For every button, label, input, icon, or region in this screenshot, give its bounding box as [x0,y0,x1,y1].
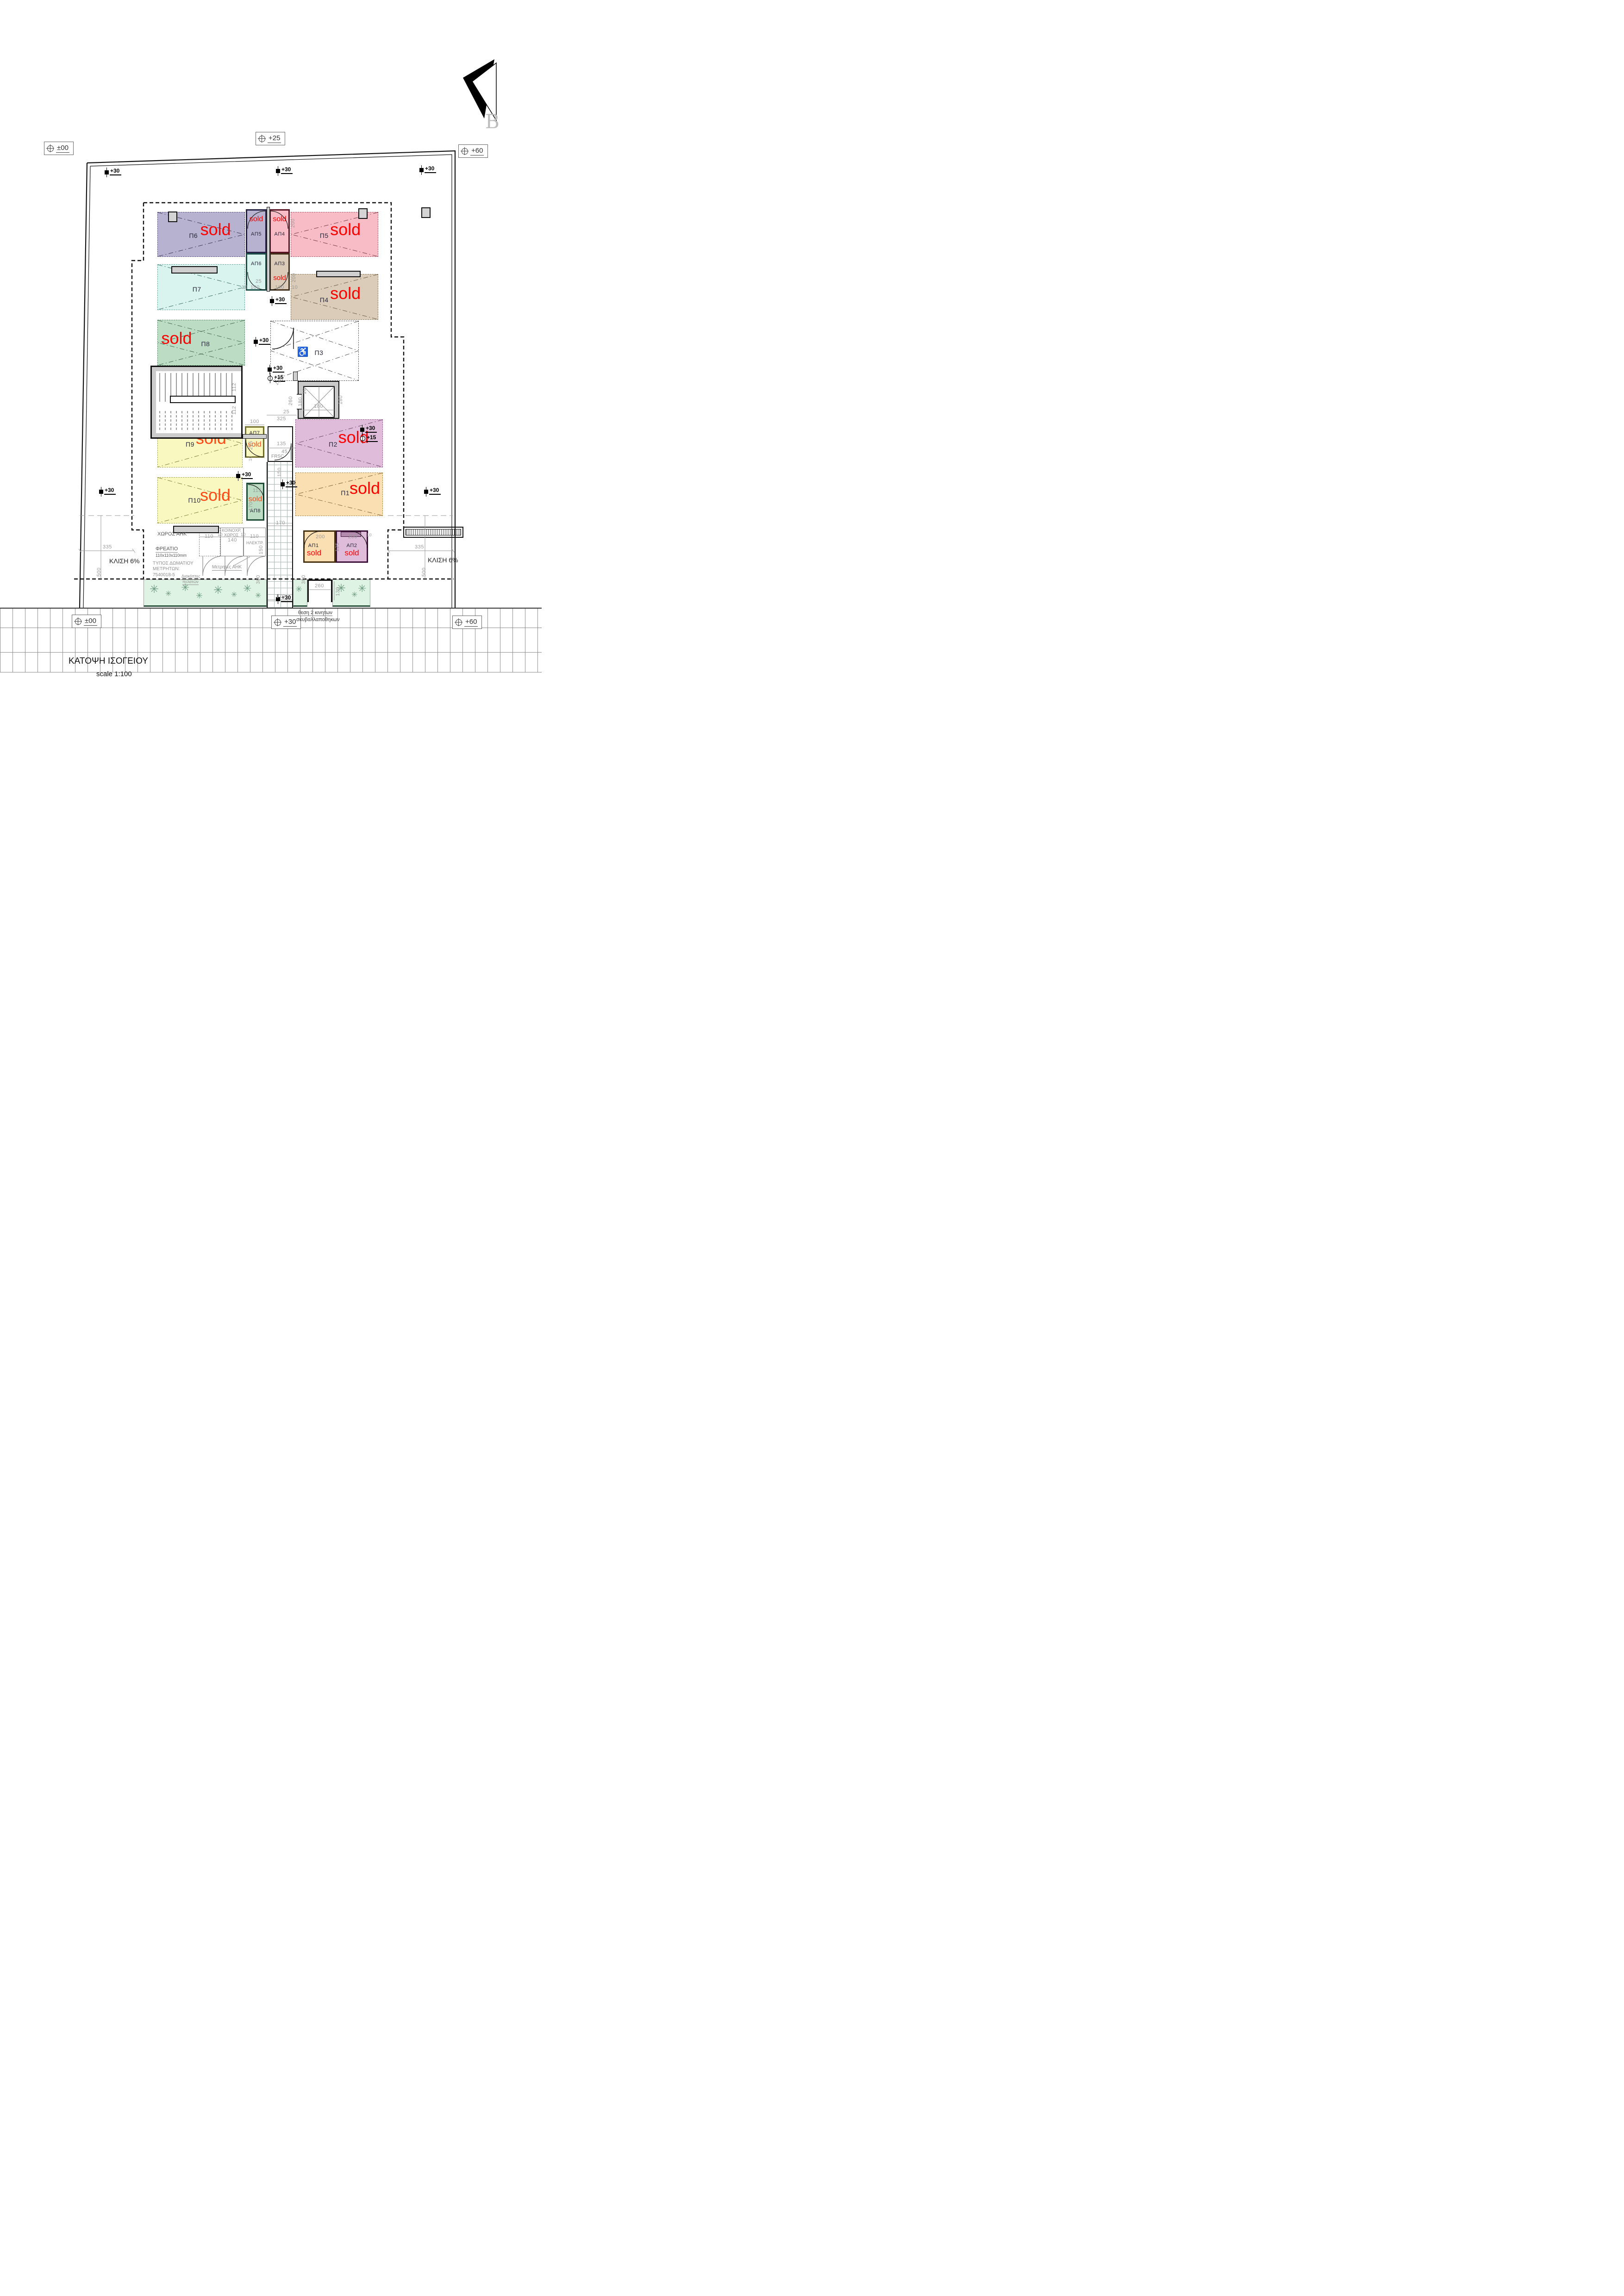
dim: 200 [316,534,325,540]
dim: 10 [242,285,248,290]
plant-icon: ✳ [243,583,251,595]
spot-level-marker: +30 [276,166,293,174]
dim: 112 [231,383,237,392]
spot-level-marker: +30 [236,471,253,479]
spot-level-marker: +30 [99,487,116,495]
sold-badge: sold [200,488,231,503]
column [168,212,177,222]
lintel [316,271,361,277]
typos-line2: ΜΕΤΡΗΤΩΝ: [153,566,180,572]
sold-badge: sold [200,222,231,237]
elevator-car [303,386,335,418]
spot-level-marker: +30 [360,425,377,433]
level-value: +60 [470,147,484,156]
dim: 100 [250,285,260,290]
level-marker-box-top-left: ±00 [44,142,74,155]
level-value: ±00 [84,617,97,626]
dim: 110 [250,534,259,539]
dim: 112 [231,406,237,415]
stair-wall [152,433,241,437]
spot-icon [254,340,258,344]
drawing-title: ΚΑΤΟΨΗ ΙΣΟΓΕΙΟΥ [69,656,148,666]
level-value: +25 [268,134,281,143]
dim: 215 [248,441,254,450]
spot-level-marker: +30 [270,296,287,304]
storage-label: ΑΠ3 [271,261,288,267]
parking-space-p4[interactable]: Π4 sold [291,274,378,320]
parking-space-p1[interactable]: Π1 sold [295,473,383,516]
pavement-row [0,628,542,653]
wheelchair-icon: ♿ [297,346,309,358]
dim: 25 [283,409,289,415]
level-marker-box-bottom-left: ±00 [72,615,101,628]
parking-label: Π9 [186,441,194,448]
dim: 25 [256,279,262,284]
parking-space-p10[interactable]: Π10 sold [157,477,243,523]
spot-icon [419,168,424,172]
lobby-wall [293,372,298,381]
column [358,208,368,219]
dim: 180 [338,395,344,404]
benchmark-icon [75,618,81,625]
plant-icon: ✳ [295,585,302,594]
dim: 115 [253,488,262,493]
dim: 10 [302,388,307,394]
level-marker-box-top-right: +60 [458,144,488,158]
plant-icon: ✳ [358,583,366,595]
dim: 130 [335,587,341,596]
spot-icon [360,436,365,441]
sold-badge: sold [330,222,361,237]
dim: 100 [275,285,284,290]
sold-badge: sold [271,216,288,223]
benchmark-icon [275,619,281,626]
spot-level-marker: +30 [419,165,436,173]
sold-badge: sold [337,549,367,556]
spot-level-marker: +30 [268,365,284,373]
level-value: +30 [283,618,297,627]
storage-label: ΑΠ2 [337,543,367,548]
benchmark-icon [47,145,54,152]
drawing-scale: scale 1:100 [96,670,132,678]
dim: 10 [248,456,253,461]
plant-icon: ✳ [150,583,159,596]
parking-label: Π2 [329,441,337,448]
party-wall [267,207,270,292]
storage-label: ΑΠ5 [247,231,265,237]
parking-label: Π5 [320,232,329,239]
ilektr-label: ΗΛΕΚΤΡ. [246,541,263,545]
metrites-label: Μετρητές ΑΗΚ [212,565,242,571]
sold-badge: sold [247,216,265,223]
plant-icon: ✳ [196,591,203,601]
plant-icon: ✳ [165,589,171,598]
dim: 500 [421,567,427,577]
klisi-left-label: ΚΛΙΣΗ 6% [109,557,139,565]
frsc-label: FRSC [271,454,284,459]
spot-level-marker: +30 [424,487,441,495]
dim: 135 [277,441,286,447]
bins-label-line2: σκυβαλλαποθηκων [296,617,339,622]
freatio-size: 110x110x110mm [156,553,187,558]
dim: 300 [301,575,306,584]
klisi-right-label: ΚΛΙΣΗ 6% [428,556,458,564]
plant-icon: ✳ [231,590,237,599]
level-value: +60 [464,618,478,627]
plant-icon: ✳ [255,591,261,600]
parking-label: Π4 [320,296,329,304]
spot-icon [268,367,272,372]
stair-wall [152,367,241,371]
dim: 180 [314,404,323,409]
koinoxr-line2: ΧΩΡΟΣ [224,533,238,537]
dim: 170 [248,502,254,511]
plant-icon: ✳ [351,590,357,599]
spot-level-marker: +30 [105,168,121,175]
sold-badge: sold [350,481,380,496]
level-marker-box-bottom-right: +60 [452,616,482,629]
spot-icon [236,474,240,478]
dim: 150 [277,467,282,477]
dim: 260 [315,583,324,589]
sold-badge: sold [299,549,329,556]
lintel [171,266,218,274]
dim: 200 [291,273,297,282]
spot-icon [268,376,273,381]
level-marker-box-top-center: +25 [256,132,285,145]
north-letter: B [485,110,500,133]
dim: 10 [241,532,246,537]
storage-room-ap4[interactable]: sold ΑΠ4 [269,209,290,253]
dim: 45 [281,449,287,454]
dim: 125 [335,542,340,552]
sold-badge: sold [271,275,288,281]
xoros-ahk-label: ΧΩΡΟΣ ΑΗΚ [157,531,187,537]
column [421,207,431,218]
dim: 170 [276,594,285,599]
dim: 500 [96,567,102,577]
landscape-strip-left: ✳ ✳ ✳ ✳ ✳ ✳ ✳ ✳ [144,579,267,607]
dim: 170 [276,520,285,526]
spot-icon [360,428,364,432]
dim: 110 [205,534,213,539]
spot-icon [105,170,109,174]
typos-line1: ΤΥΠΟΣ ΔΩΜΑΤΙΟΥ [153,561,194,566]
stair-wall [152,367,156,437]
grille-strip [403,527,463,538]
parking-label: Π8 [201,340,210,348]
dim: 100 [250,419,259,424]
diakoptes-line1: Διακόπτες [181,574,200,579]
storage-label: ΑΠ6 [247,261,265,267]
dim: 325 [277,416,286,422]
storage-label: ΑΠ4 [271,231,288,237]
storage-room-ap5[interactable]: sold ΑΠ5 [246,209,267,253]
dim: 10 [292,285,298,290]
benchmark-icon [462,148,468,155]
stairwell [150,366,243,439]
spot-icon [99,490,103,494]
spot-icon [276,169,280,173]
floor-plan-page: Π6 sold Π5 sold Π7 Π4 sold sold Π8 ♿ Π3 [0,0,542,765]
koinoxr-line1: ΚΟΙΝΟΧΡ. [222,528,241,533]
spot-icon [424,490,428,494]
dim: 200 [290,218,296,228]
lobby-wall [243,434,267,439]
dim: 300 [256,575,261,584]
level-value: ±00 [56,144,69,153]
dim: 150 [258,545,264,554]
dim: 200 [348,534,357,540]
dim: 335 [415,544,424,550]
typos-line3: 7540018-5 [153,572,175,578]
parking-label: Π7 [193,286,201,293]
dim: 260 [288,396,294,405]
benchmark-icon [456,619,462,626]
spot-icon [270,299,274,303]
spot-level-marker: +30 [254,337,270,345]
dim: 180 [298,397,303,406]
dim: 335 [103,544,112,550]
parking-label: Π1 [341,489,350,497]
benchmark-icon [259,136,265,142]
plant-icon: ✳ [213,584,223,597]
parking-label: Π3 [315,349,324,356]
spot-level-marker: +15 [360,434,378,442]
spot-level-marker: +30 [281,479,297,487]
freatio-label: ΦΡΕΑΤΙΟ [156,546,178,553]
dim: 10 [367,533,372,537]
parking-space-p8[interactable]: sold Π8 [157,320,245,366]
parking-label: Π10 [188,497,201,504]
dim: 10 [218,532,223,537]
parking-label: Π6 [189,232,198,239]
diakoptes-line2: πελατών [182,579,199,585]
spot-icon [281,482,285,486]
sold-badge: sold [330,286,361,301]
bins-label-line1: θεση 2 κινητων [298,610,332,616]
storage-label: ΑΠ1 [308,543,319,548]
dim: 140 [228,537,237,543]
sold-badge: sold [161,331,192,346]
